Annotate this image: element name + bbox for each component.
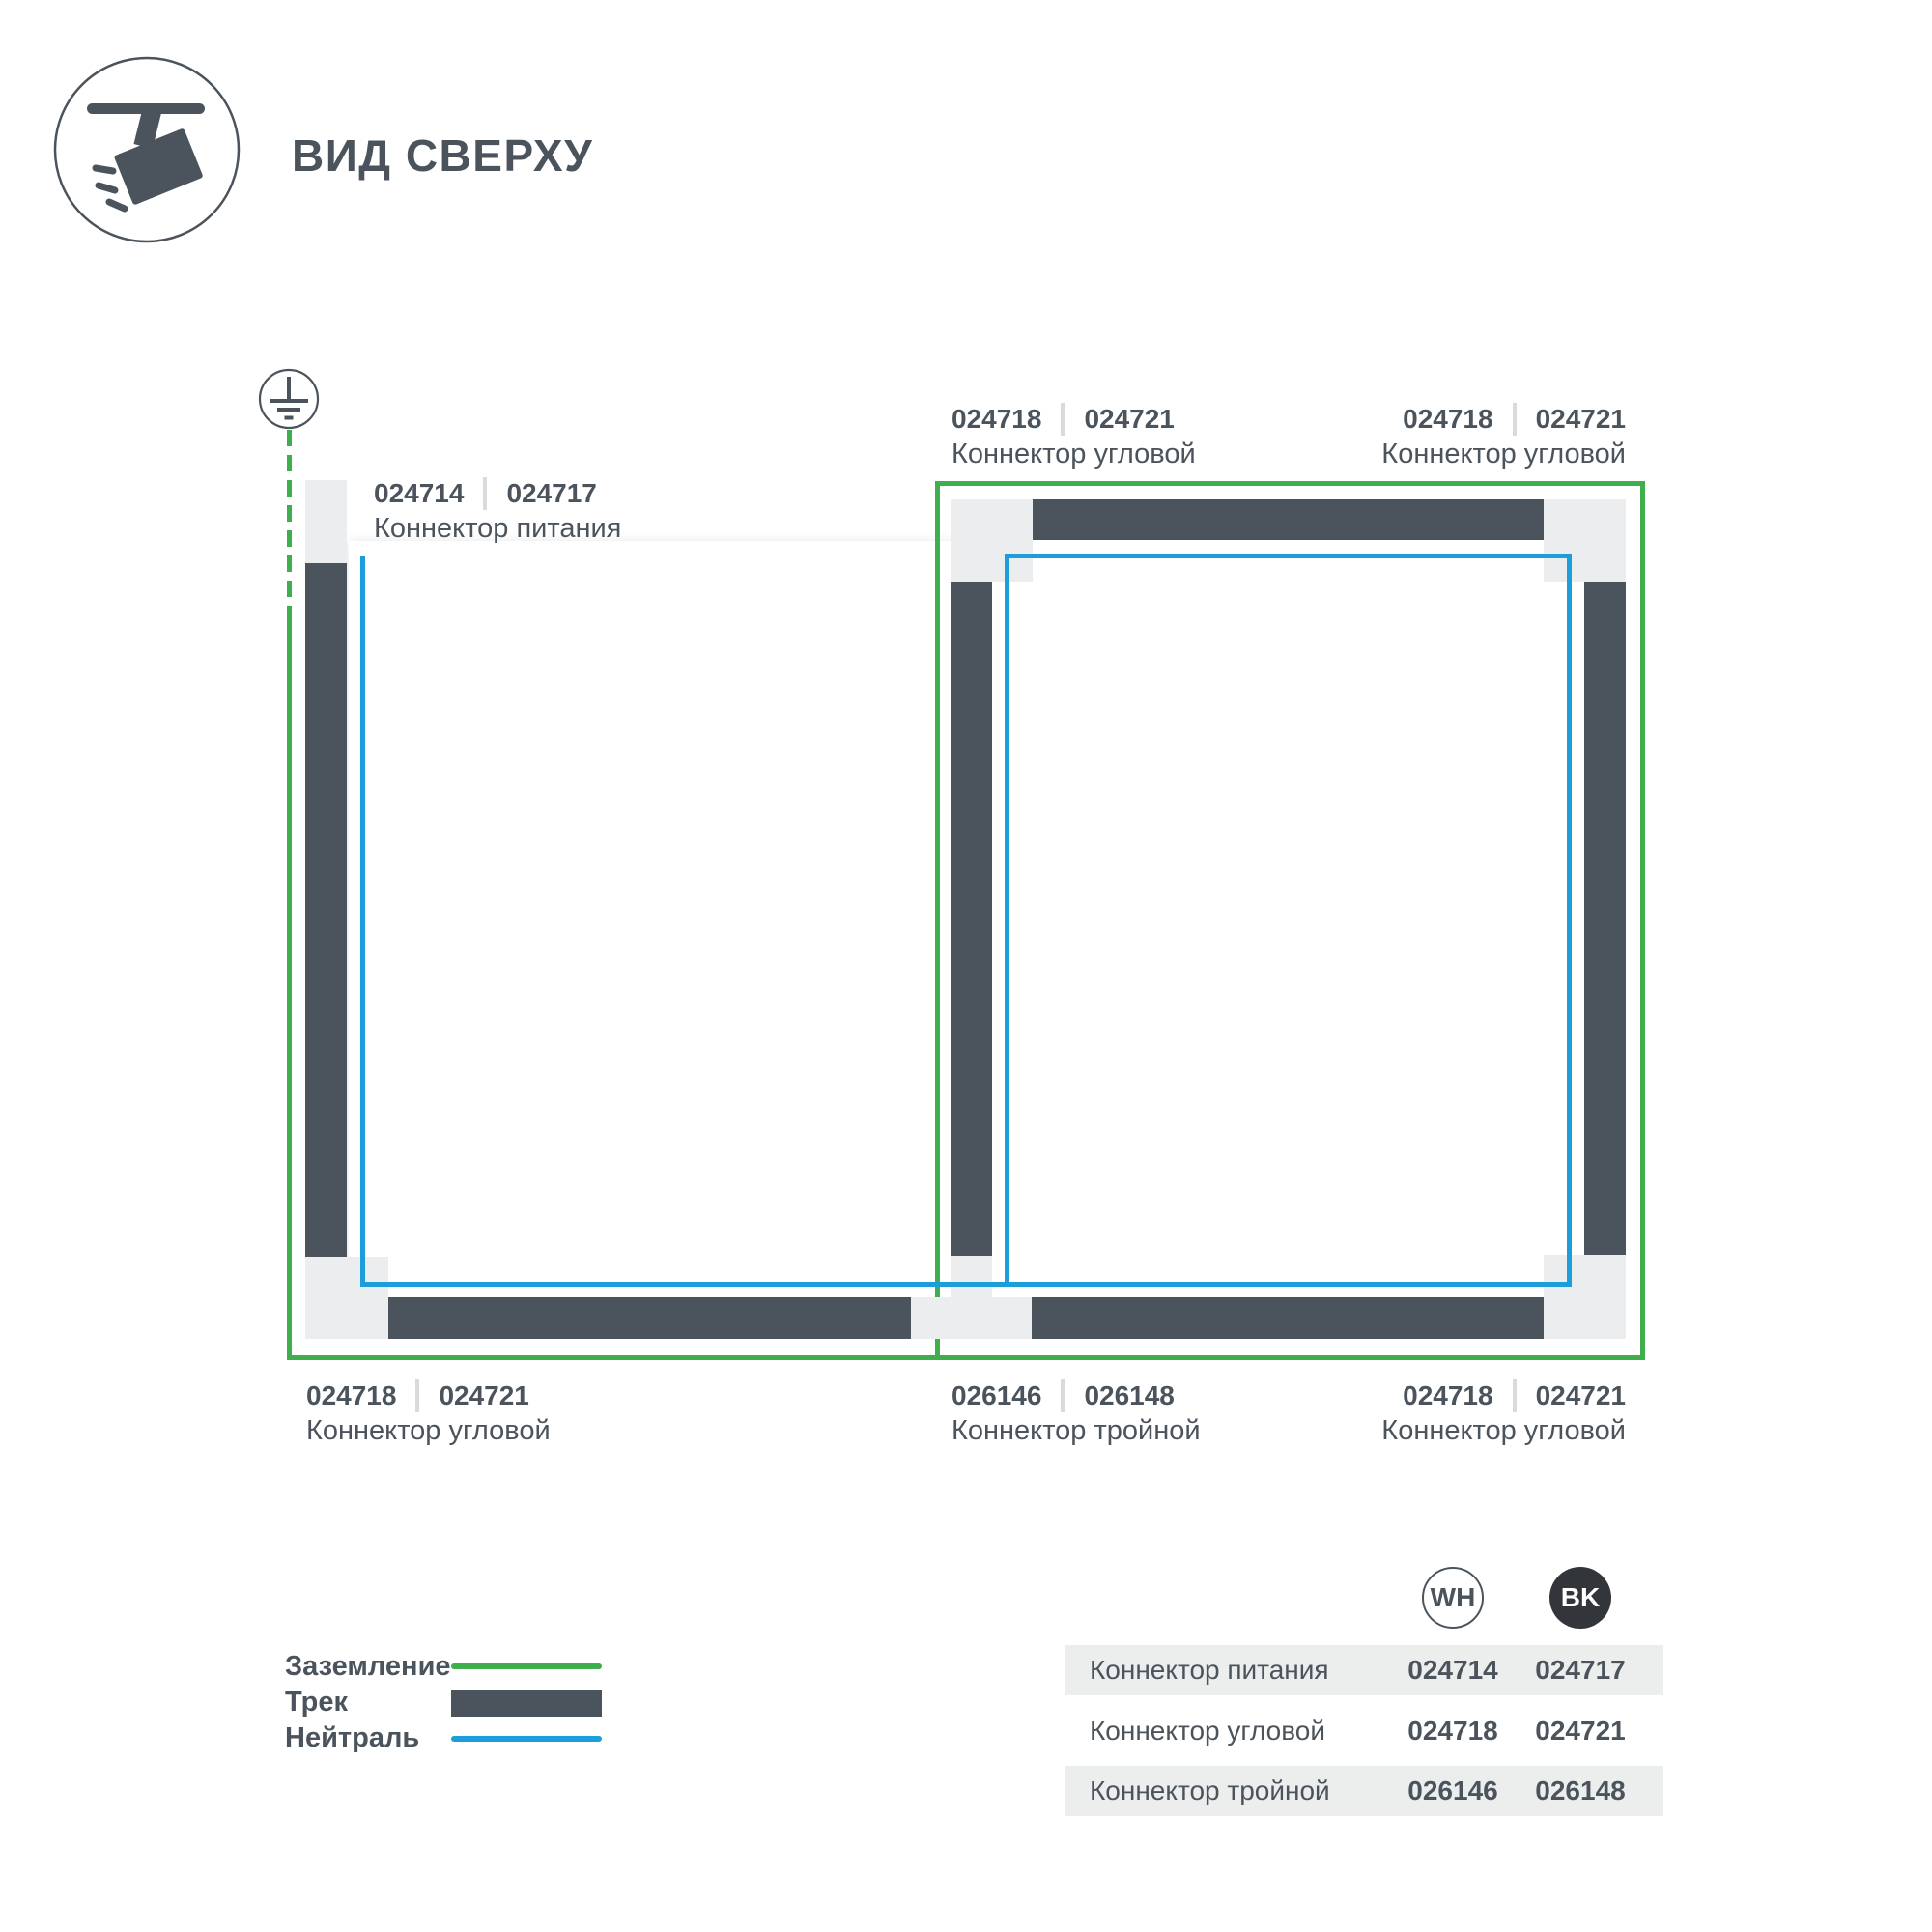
code-wh: 026146 [952,1380,1041,1411]
legend-label-neutral: Нейтраль [285,1722,419,1754]
legend-label-track: Трек [285,1687,348,1719]
corner-connector-codes: 024718 024721 [1381,1381,1626,1410]
connector-name: Коннектор угловой [306,1416,551,1446]
corner-connector-label-bottom-left: 024718 024721 Коннектор угловой [306,1381,551,1446]
legend-track-bar-swatch [451,1690,602,1717]
color-badge-wh: WH [1422,1567,1484,1629]
corner-connector-block-bottom-left [305,1257,388,1339]
code-wh: 024718 [1403,1380,1492,1411]
code-separator [1513,403,1517,436]
connector-name: Коннектор угловой [1381,1416,1626,1446]
track-right-bottom [1032,1297,1544,1339]
code-bk: 024721 [1536,404,1626,435]
corner-connector-label-top-right: 024718 024721 Коннектор угловой [1381,405,1626,469]
code-wh: 024718 [306,1380,396,1411]
legend-ground-line-swatch [451,1663,602,1669]
track-right-right-vertical [1584,582,1626,1255]
row-wh-code: 024718 [1395,1716,1511,1747]
track-left-bottom [388,1297,911,1339]
connector-name: Коннектор тройной [952,1416,1201,1446]
connector-name: Коннектор угловой [1381,440,1626,469]
row-name: Коннектор питания [1090,1655,1329,1686]
code-bk: 024721 [439,1380,528,1411]
row-wh-code: 024714 [1395,1655,1511,1686]
corner-connector-codes: 024718 024721 [1381,405,1626,434]
track-left-vertical [305,563,347,1257]
code-bk: 024721 [1084,404,1174,435]
table-row: Коннектор угловой 024718 024721 [1065,1695,1663,1766]
corner-connector-block-bottom-right [1544,1255,1626,1339]
row-bk-code: 024721 [1522,1716,1638,1747]
ground-symbol-icon [258,368,320,430]
right-track-inner-panel [992,540,1584,1297]
power-connector-label: 024714 024717 Коннектор питания [374,479,621,544]
triple-connector-codes: 026146 026148 [952,1381,1201,1410]
code-wh: 024718 [952,404,1041,435]
code-wh: 024714 [374,478,464,509]
row-bk-code: 026148 [1522,1776,1638,1806]
row-name: Коннектор тройной [1090,1776,1330,1806]
code-separator [1513,1379,1517,1412]
legend-neutral-line-swatch [451,1736,602,1742]
connector-name: Коннектор питания [374,514,621,544]
table-row: Коннектор питания 024714 024717 [1065,1645,1663,1695]
code-separator [1061,1379,1065,1412]
track-right-top [1033,499,1544,540]
row-wh-code: 026146 [1395,1776,1511,1806]
triple-connector-block [911,1297,1032,1339]
page-title: ВИД СВЕРХУ [292,129,593,182]
color-badge-bk: BK [1549,1567,1611,1629]
code-bk: 024717 [506,478,596,509]
legend-label-ground: Заземление [285,1651,451,1683]
connector-name: Коннектор угловой [952,440,1196,469]
row-bk-code: 024717 [1522,1655,1638,1686]
code-separator [483,477,487,510]
corner-connector-label-top-center: 024718 024721 Коннектор угловой [952,405,1196,469]
code-wh: 024718 [1403,404,1492,435]
table-row: Коннектор тройной 026146 026148 [1065,1766,1663,1816]
diagram-canvas: ВИД СВЕРХУ 024714 [0,0,1932,1932]
triple-connector-stub [951,1256,992,1297]
corner-connector-label-bottom-right: 024718 024721 Коннектор угловой [1381,1381,1626,1446]
corner-connector-block-top-center [951,499,1033,582]
code-separator [1061,403,1065,436]
corner-connector-codes: 024718 024721 [306,1381,551,1410]
triple-connector-label: 026146 026148 Коннектор тройной [952,1381,1201,1446]
code-bk: 024721 [1536,1380,1626,1411]
track-spotlight-icon [53,56,241,243]
code-separator [415,1379,419,1412]
code-bk: 026148 [1084,1380,1174,1411]
left-track-inner-panel [349,541,993,1297]
row-name: Коннектор угловой [1090,1716,1325,1747]
track-right-left-vertical [951,582,992,1256]
power-connector-block [305,480,347,563]
corner-connector-block-top-right [1544,499,1626,582]
corner-connector-codes: 024718 024721 [952,405,1196,434]
power-connector-codes: 024714 024717 [374,479,621,508]
